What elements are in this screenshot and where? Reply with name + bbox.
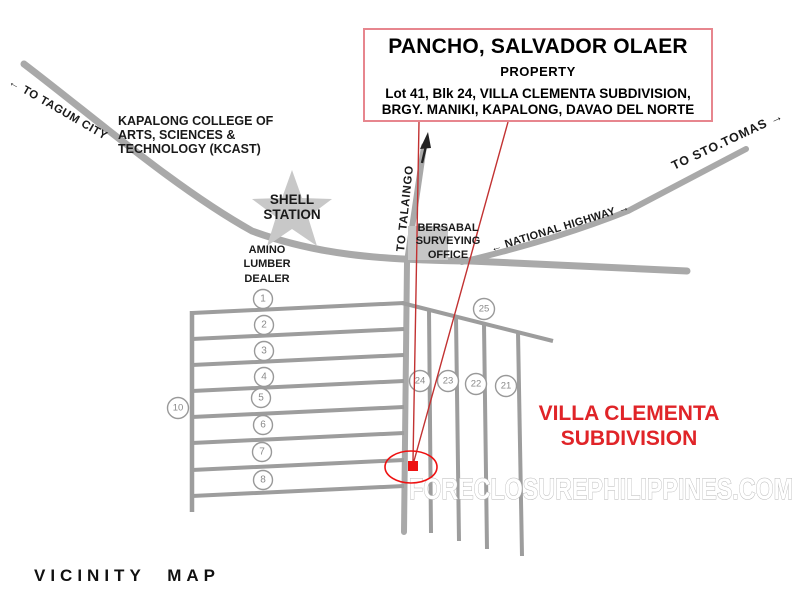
svg-text:21: 21 [501,381,512,392]
property-title-box: PANCHO, SALVADOR OLAER PROPERTY Lot 41, … [363,28,713,122]
lot-marker: 4 [255,368,274,387]
lot-marker: 1 [254,290,273,309]
lot-marker: 2 [255,316,274,335]
left-block-streets [192,303,404,496]
svg-text:5: 5 [258,393,264,404]
svg-text:4: 4 [261,372,267,383]
road-label-national-highway: ← NATIONAL HIGHWAY → [489,201,631,255]
address-line-2: BRGY. MANIKI, KAPALONG, DAVAO DEL NORTE [365,102,711,118]
svg-text:25: 25 [479,304,490,315]
map-footer: VICINITY MAP (Not to Scale. For Identifi… [34,548,220,600]
shell-station-label: SHELL STATION [252,192,332,222]
lot-marker: 25 [474,299,495,320]
svg-text:3: 3 [261,346,267,357]
vicinity-map: 1 2 3 4 5 6 7 [0,0,800,600]
svg-text:6: 6 [260,420,266,431]
lot-marker: 6 [254,416,273,435]
svg-text:1: 1 [260,294,266,305]
kcast-label: KAPALONG COLLEGE OF ARTS, SCIENCES & TEC… [118,115,273,156]
watermark-text: FORECLOSUREPHILIPPINES.COM [409,473,793,506]
lot-marker: 24 [410,371,431,392]
svg-text:24: 24 [415,376,426,387]
lot-marker: 22 [466,374,487,395]
svg-text:2: 2 [261,320,267,331]
svg-text:22: 22 [471,379,482,390]
address-line-1: Lot 41, Blk 24, VILLA CLEMENTA SUBDIVISI… [365,86,711,102]
svg-text:7: 7 [259,447,265,458]
lot-marker: 21 [496,376,517,397]
owner-name: PANCHO, SALVADOR OLAER [365,35,711,59]
lot-marker: 7 [253,443,272,462]
svg-text:23: 23 [443,376,454,387]
lot-marker: 3 [255,342,274,361]
lot-marker: 23 [438,371,459,392]
vicinity-map-title: VICINITY MAP [34,566,220,586]
lot-marker: 5 [252,389,271,408]
svg-text:8: 8 [260,475,266,486]
arrow-up-head-icon [420,132,431,149]
callout-lines [413,122,508,461]
lot-marker: 10 [168,398,189,419]
property-address: Lot 41, Blk 24, VILLA CLEMENTA SUBDIVISI… [365,86,711,119]
property-marker [408,461,418,471]
amino-lumber-label: AMINO LUMBER DEALER [233,243,301,286]
property-label: PROPERTY [365,64,711,79]
lot-marker: 8 [254,471,273,490]
svg-text:10: 10 [173,403,184,414]
bersabal-office-label: BERSABAL SURVEYING OFFICE [412,222,484,262]
subdivision-name-label: VILLA CLEMENTA SUBDIVISION [520,402,738,452]
